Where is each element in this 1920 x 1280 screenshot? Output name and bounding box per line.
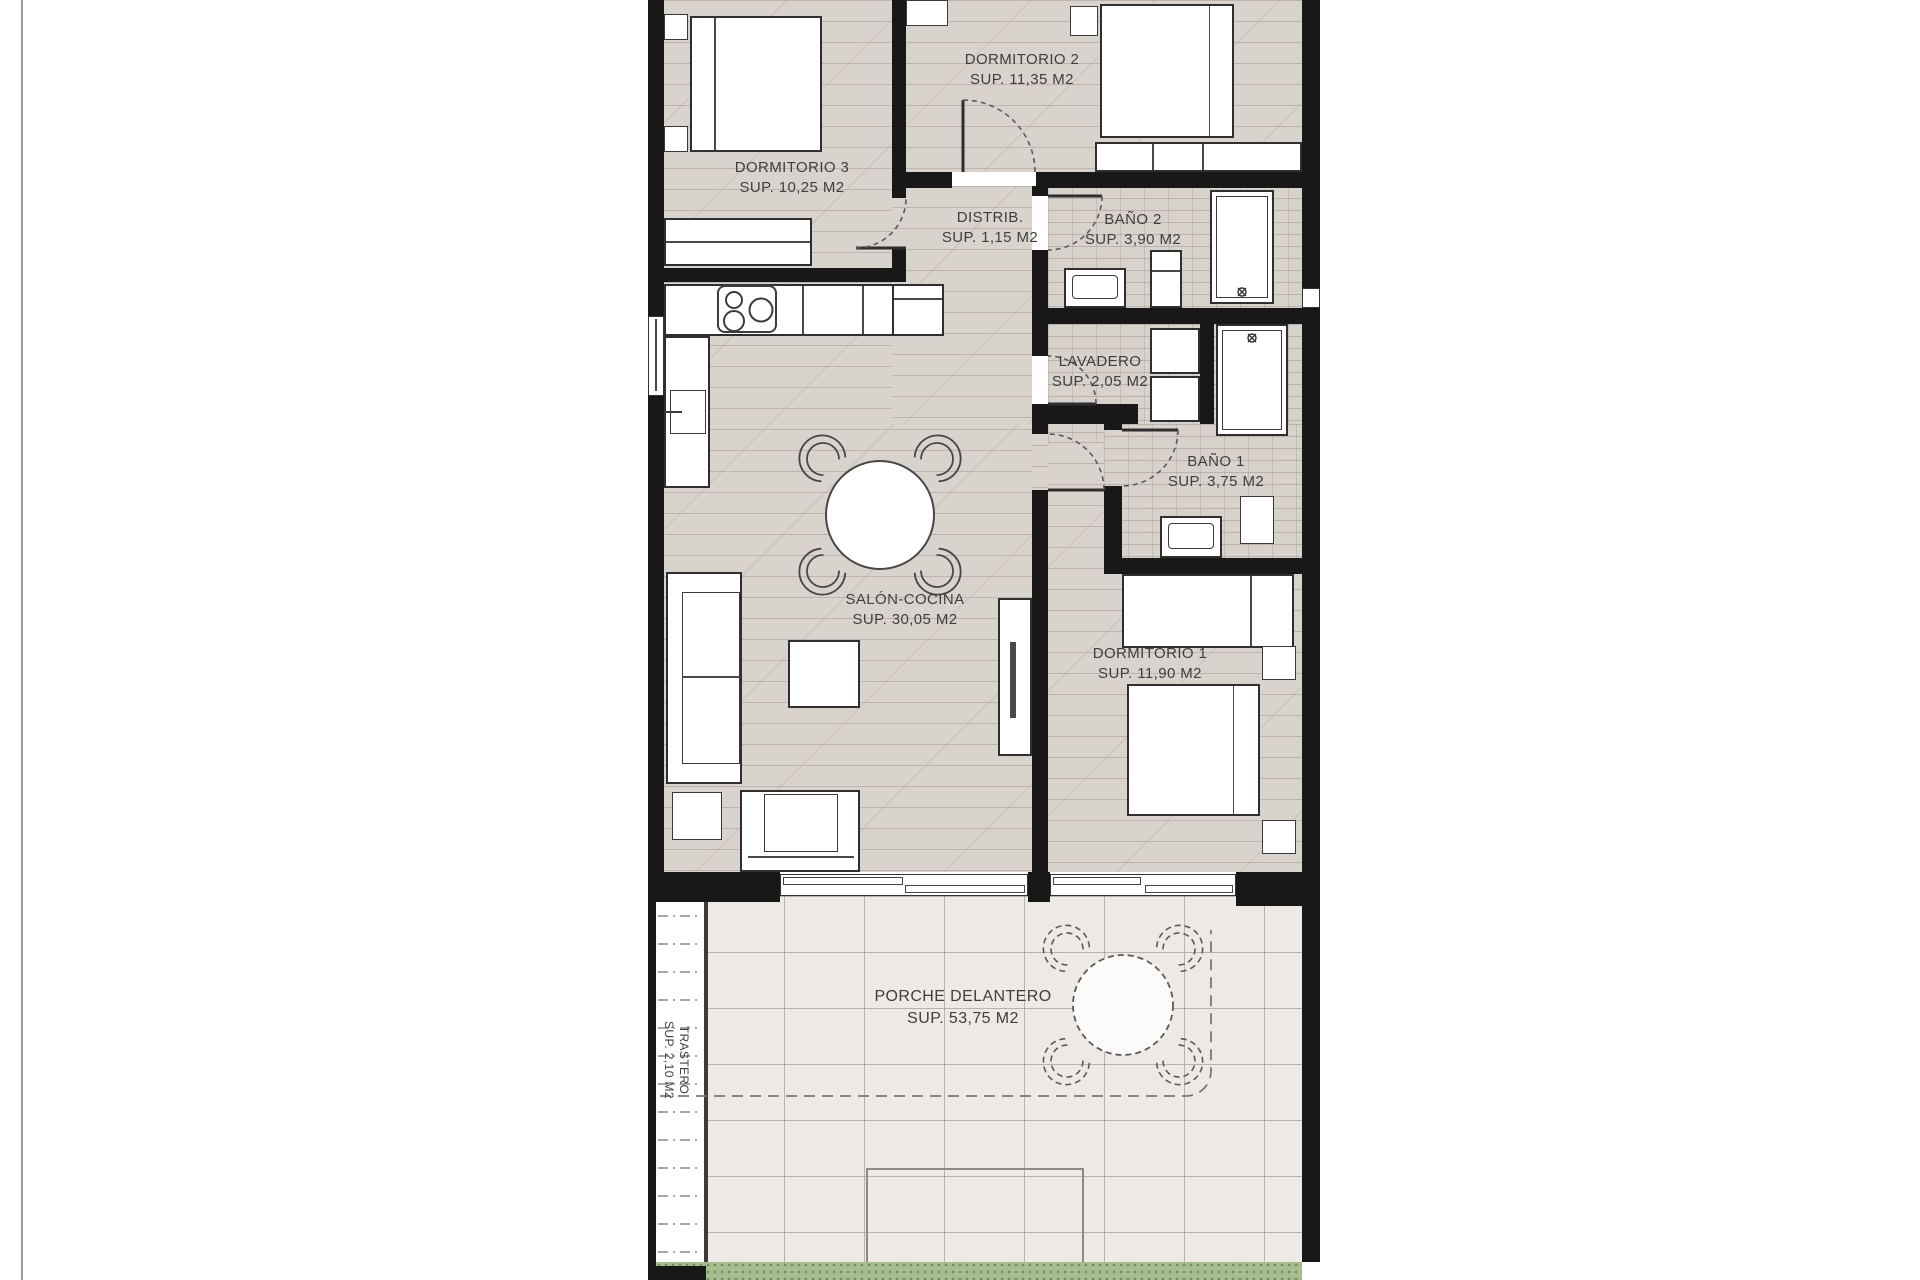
fridge (892, 284, 944, 336)
washer-lavadero (1150, 328, 1200, 374)
room-label-salon: SALÓN-COCINA SUP. 30,05 M2 (846, 590, 965, 630)
room-label-trastero: TRASTERO SUP. 2,10 M2 (661, 1021, 691, 1099)
wall-bottom-left-step (648, 872, 780, 902)
room-area: SUP. 2,05 M2 (1052, 372, 1148, 392)
wall-dorm2-bottom-right (1036, 172, 1320, 188)
room-area: SUP. 53,75 M2 (874, 1008, 1051, 1030)
divider-line (1250, 576, 1252, 646)
room-name: PORCHE DELANTERO (874, 986, 1051, 1008)
armchair (740, 790, 860, 872)
sofa (666, 572, 742, 784)
fridge-line (894, 298, 942, 300)
window-pane (783, 877, 903, 885)
pillow-divider (1233, 686, 1235, 814)
room-name: DISTRIB. (942, 208, 1038, 228)
wall-right-outer-bottom (1302, 308, 1320, 1262)
room-label-dormitorio3: DORMITORIO 3 SUP. 10,25 M2 (735, 158, 850, 198)
cushion-divider (682, 676, 740, 678)
room-name: DORMITORIO 2 (965, 50, 1080, 70)
wall-lavadero-bottom (1032, 404, 1138, 424)
window-vent-right (1302, 288, 1320, 308)
wall-lavadero-shower-divider (1200, 324, 1214, 424)
wall-corridor-stub (1032, 424, 1048, 434)
wall-trastero-cap (648, 1266, 706, 1280)
divider-line (1152, 144, 1154, 170)
armchair-seat (764, 794, 838, 852)
kitchen-tall-cabinet (664, 336, 710, 488)
window-glass-line (655, 319, 657, 391)
wardrobe-dormitorio2 (1095, 142, 1302, 172)
room-label-dormitorio1: DORMITORIO 1 SUP. 11,90 M2 (1093, 644, 1208, 684)
window-pane (1053, 877, 1141, 885)
counter-divider (802, 286, 804, 334)
room-label-porche: PORCHE DELANTERO SUP. 53,75 M2 (874, 986, 1051, 1030)
kitchen-sink (670, 390, 706, 434)
pillow-divider (714, 18, 716, 150)
wall-dorm2-bottom-left (892, 172, 952, 188)
room-label-bano2: BAÑO 2 SUP. 3,90 M2 (1085, 210, 1181, 250)
tank-line (1152, 270, 1180, 272)
dryer-lavadero (1150, 376, 1200, 422)
bed-dormitorio2 (1100, 4, 1234, 138)
shelf-line (666, 241, 810, 243)
room-label-distribuidor: DISTRIB. SUP. 1,15 M2 (942, 208, 1038, 248)
closet-dormitorio2 (906, 0, 948, 26)
room-label-bano1: BAÑO 1 SUP. 3,75 M2 (1168, 452, 1264, 492)
wall-trastero-left (648, 902, 656, 1268)
tv-unit (998, 598, 1032, 756)
wall-trastero-right (704, 902, 708, 1262)
sofa-seat (682, 592, 740, 764)
window-sliding-salon (780, 874, 1028, 896)
toilet-bano2 (1150, 250, 1182, 308)
basin (1168, 523, 1214, 549)
window-pane (1145, 885, 1233, 893)
room-area: SUP. 3,90 M2 (1085, 230, 1181, 250)
washbasin-bano1 (1160, 516, 1222, 558)
pillow-divider (1209, 6, 1211, 136)
tv-screen (1010, 642, 1016, 718)
room-area: SUP. 30,05 M2 (846, 610, 965, 630)
room-area: SUP. 11,90 M2 (1093, 664, 1208, 684)
room-name: BAÑO 2 (1085, 210, 1181, 230)
room-area: SUP. 11,35 M2 (965, 70, 1080, 90)
counter-divider (862, 286, 864, 334)
garden-strip (656, 1262, 1302, 1280)
wall-left-outer-bottom (648, 396, 664, 872)
page-border-line (21, 0, 23, 1280)
room-name: BAÑO 1 (1168, 452, 1264, 472)
nightstand (664, 126, 688, 152)
floor-plan-page: { "page": { "background": "#ffffff", "bo… (0, 0, 1920, 1280)
nightstand (1262, 646, 1296, 680)
cabinet-bano1 (1240, 496, 1274, 544)
wall-distrib-stub-top (892, 188, 906, 198)
wall-window-pier (1028, 872, 1050, 902)
floor-porche (704, 896, 1302, 1262)
window-pane (905, 885, 1025, 893)
armchair-front-line (748, 856, 854, 858)
room-label-dormitorio2: DORMITORIO 2 SUP. 11,35 M2 (965, 50, 1080, 90)
wall-bottom-right-corner (1236, 872, 1302, 906)
bed-dormitorio1 (1127, 684, 1260, 816)
window-sliding-dorm1 (1050, 874, 1236, 896)
wall-corridor-lavadero-stub (1032, 324, 1048, 356)
room-area: SUP. 2,10 M2 (661, 1021, 676, 1099)
nightstand (1262, 820, 1296, 854)
room-label-lavadero: LAVADERO SUP. 2,05 M2 (1052, 352, 1148, 392)
room-area: SUP. 1,15 M2 (942, 228, 1038, 248)
washbasin-bano2 (1064, 268, 1126, 308)
room-area: SUP. 10,25 M2 (735, 178, 850, 198)
wall-dorm3-dorm2 (892, 0, 906, 172)
wall-right-outer-top (1302, 0, 1320, 288)
wardrobe-dormitorio1 (1122, 574, 1294, 648)
shower-bano2 (1210, 190, 1274, 304)
wall-bano1-left-top (1104, 424, 1122, 430)
wall-bano1-left-bottom (1104, 486, 1122, 558)
window-kitchen-left (648, 316, 664, 396)
room-name: TRASTERO (676, 1021, 691, 1099)
nightstand (1070, 6, 1098, 36)
room-name: DORMITORIO 1 (1093, 644, 1208, 664)
wall-salon-dorm1 (1032, 490, 1048, 872)
wall-dorm3-bottom (662, 268, 906, 282)
divider-line (1202, 144, 1204, 170)
wall-bano1-bottom (1104, 558, 1302, 574)
shower-tray (1222, 330, 1282, 430)
room-name: LAVADERO (1052, 352, 1148, 372)
shower-bano1-tray (1216, 324, 1288, 436)
shower-tray (1216, 196, 1268, 298)
wall-distrib-bano2-bottom (1032, 250, 1048, 308)
bed-dormitorio3 (690, 16, 822, 152)
basin (1072, 275, 1118, 299)
wall-bano2-bottom (1032, 308, 1320, 324)
room-name: DORMITORIO 3 (735, 158, 850, 178)
wall-distrib-bano2-top (1032, 186, 1048, 196)
room-area: SUP. 3,75 M2 (1168, 472, 1264, 492)
room-name: SALÓN-COCINA (846, 590, 965, 610)
wardrobe-dormitorio3 (664, 218, 812, 266)
nightstand (664, 14, 688, 40)
side-table (672, 792, 722, 840)
coffee-table (788, 640, 860, 708)
